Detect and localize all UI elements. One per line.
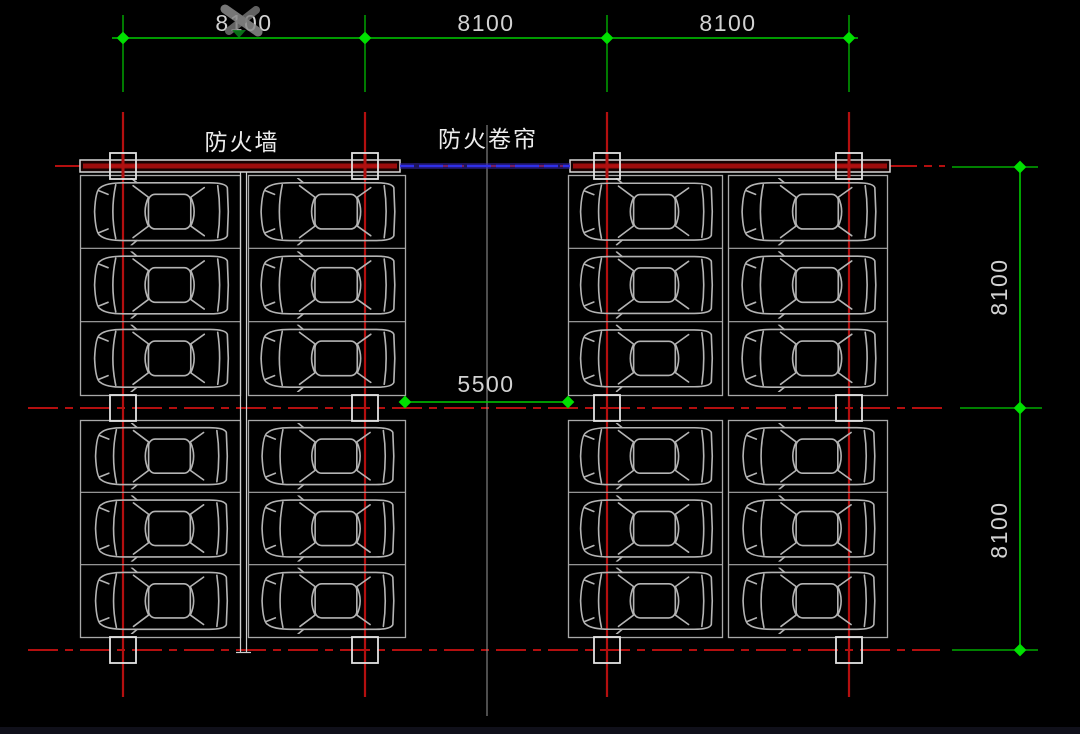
dimension-tick	[399, 396, 412, 409]
car-symbol	[262, 568, 394, 634]
car-symbol	[262, 423, 394, 489]
parking-block	[248, 176, 406, 396]
parking-block-outline	[729, 421, 888, 638]
car-symbol	[581, 568, 713, 634]
dimension-tick	[1014, 644, 1027, 657]
parking-block-outline	[569, 421, 723, 638]
dimension-tick	[117, 32, 130, 45]
cad-drawing: 8100 8100 8100 8100 8100 5500 防火墙 防火卷帘	[0, 0, 1080, 734]
dimension-tick	[843, 32, 856, 45]
dim-label-top-2: 8100	[457, 10, 514, 36]
fire-wall-label: 防火墙	[205, 130, 280, 156]
dim-label-top-3: 8100	[699, 10, 756, 36]
car-symbol	[743, 495, 875, 561]
parking-block	[80, 176, 241, 396]
dimension-tick	[1014, 402, 1027, 415]
fire-shutter-label: 防火卷帘	[438, 127, 538, 153]
parking-layer	[80, 176, 888, 638]
car-symbol	[261, 251, 395, 318]
car-symbol	[742, 178, 876, 245]
parking-block	[80, 421, 241, 638]
car-symbol	[261, 325, 395, 392]
car-symbol	[743, 568, 875, 634]
car-symbol	[742, 325, 876, 392]
parking-block	[728, 421, 888, 638]
cad-viewport: 8100 8100 8100 8100 8100 5500 防火墙 防火卷帘	[0, 0, 1080, 734]
car-symbol	[96, 423, 228, 489]
car-symbol	[581, 423, 713, 489]
car-symbol	[581, 179, 713, 245]
dim-label-aisle: 5500	[457, 371, 514, 397]
car-symbol	[96, 495, 228, 561]
parking-block	[728, 176, 888, 396]
parking-block-outline	[729, 176, 888, 396]
car-symbol	[96, 568, 228, 634]
dim-label-right-2: 8100	[986, 501, 1012, 558]
dim-label-right-1: 8100	[986, 258, 1012, 315]
parking-block-outline	[81, 421, 241, 638]
car-symbol	[95, 178, 229, 245]
grid-layer	[28, 112, 945, 716]
car-symbol	[742, 251, 876, 318]
car-symbol	[581, 252, 713, 318]
car-symbol	[262, 495, 394, 561]
car-symbol	[261, 178, 395, 245]
car-symbol	[95, 251, 229, 318]
bottom-strip	[0, 727, 1080, 734]
dimension-tick	[359, 32, 372, 45]
dimension-tick	[1014, 161, 1027, 174]
car-symbol	[743, 423, 875, 489]
parking-block	[568, 176, 723, 396]
parking-block-outline	[249, 176, 406, 396]
car-symbol	[581, 325, 713, 391]
artifact-layer	[0, 9, 1080, 734]
parking-block	[248, 421, 406, 638]
dimension-layer	[112, 15, 1042, 656]
parking-block-outline	[249, 421, 406, 638]
label-layer: 8100 8100 8100 8100 8100 5500 防火墙 防火卷帘	[205, 10, 1013, 559]
dimension-tick	[601, 32, 614, 45]
parking-block-outline	[81, 176, 241, 396]
car-symbol	[95, 325, 229, 392]
parking-block	[568, 421, 723, 638]
dimension-tick	[562, 396, 575, 409]
parking-block-outline	[569, 176, 723, 396]
car-symbol	[581, 495, 713, 561]
